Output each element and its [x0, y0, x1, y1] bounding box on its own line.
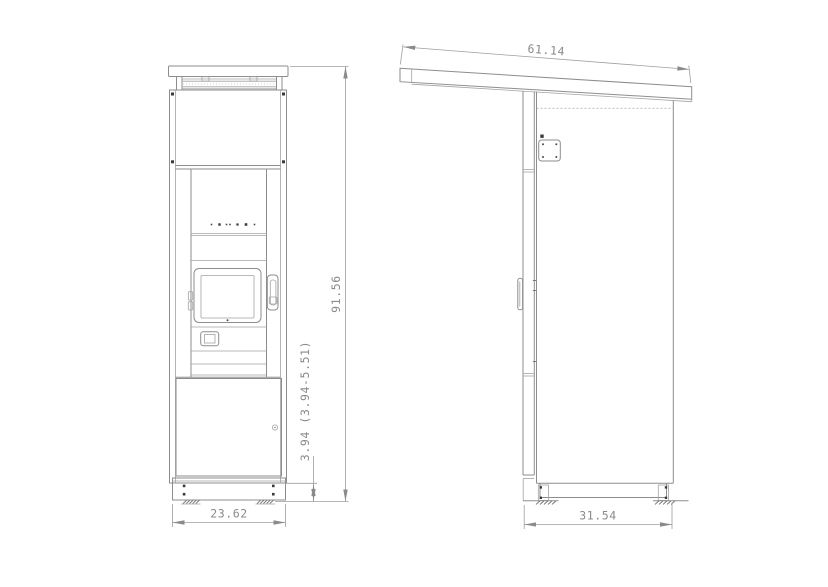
dim-base-height: 3.94 (3.94-5.51) — [287, 341, 317, 502]
roof-panel — [400, 68, 692, 101]
lower-door — [176, 379, 282, 477]
dim-side-depth: 31.54 — [524, 504, 672, 530]
control-panel-door — [188, 169, 278, 377]
cabinet-cap — [169, 66, 289, 77]
mounting-plate — [539, 135, 561, 162]
upper-panel-bolts — [171, 93, 285, 164]
leveling-feet — [181, 500, 275, 504]
front-column — [523, 91, 536, 501]
dim-label-front-width: 23.62 — [210, 507, 248, 521]
cabinet-side-body — [537, 92, 674, 484]
indicator-dots — [211, 223, 256, 226]
side-plinth — [538, 483, 668, 500]
screen — [201, 276, 254, 319]
dim-label-side-depth: 31.54 — [579, 509, 617, 523]
side-handle — [518, 278, 523, 310]
cabinet-body — [170, 90, 287, 483]
screen-bezel — [194, 269, 261, 323]
side-view — [400, 68, 692, 504]
printer-slot — [201, 332, 219, 346]
front-view — [169, 66, 289, 504]
light-fixture — [177, 77, 283, 91]
base-plinth — [173, 478, 286, 500]
drawing-page: 61.14 91.56 3.94 (3.94-5.51) 23.62 — [0, 0, 828, 587]
dim-label-overall-height: 91.56 — [329, 275, 343, 313]
kiosk-dimension-drawing: 61.14 91.56 3.94 (3.94-5.51) 23.62 — [0, 0, 828, 587]
dim-label-roof-depth: 61.14 — [527, 42, 566, 59]
card-reader-handle — [267, 275, 278, 310]
ground-hatch — [523, 501, 689, 505]
screen-button — [227, 319, 229, 321]
dim-label-base-height: 3.94 (3.94-5.51) — [298, 341, 312, 461]
dimensions: 61.14 91.56 3.94 (3.94-5.51) 23.62 — [173, 42, 691, 529]
dim-front-width: 23.62 — [173, 504, 286, 527]
